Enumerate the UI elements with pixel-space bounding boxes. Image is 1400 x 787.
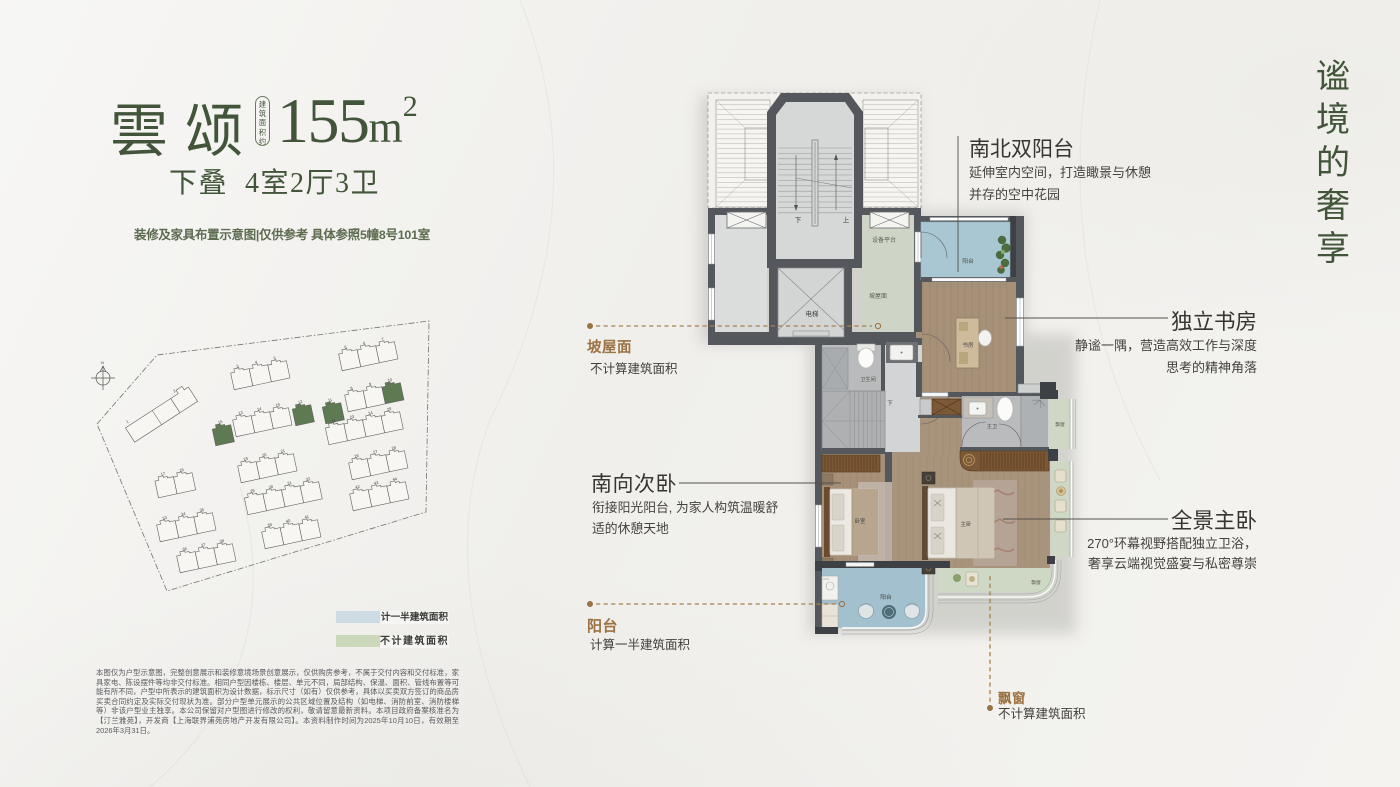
svg-text:11: 11 — [327, 397, 333, 403]
svg-text:阳台: 阳台 — [880, 593, 892, 601]
svg-text:29: 29 — [250, 488, 256, 494]
svg-text:35: 35 — [199, 507, 205, 513]
svg-text:13: 13 — [238, 410, 244, 416]
svg-text:下: 下 — [887, 400, 893, 407]
svg-text:17: 17 — [160, 471, 166, 477]
svg-text:阳台: 阳台 — [962, 257, 974, 265]
svg-text:21: 21 — [280, 448, 286, 454]
svg-text:卫生间: 卫生间 — [860, 375, 876, 383]
svg-text:40: 40 — [285, 518, 291, 524]
svg-text:36: 36 — [182, 546, 188, 552]
svg-text:主卧: 主卧 — [960, 520, 972, 528]
svg-text:下: 下 — [795, 216, 802, 224]
svg-text:27: 27 — [372, 449, 378, 455]
svg-text:坡屋面: 坡屋面 — [869, 292, 887, 300]
svg-text:9: 9 — [368, 381, 372, 387]
svg-text:6: 6 — [362, 340, 366, 346]
svg-text:19: 19 — [243, 456, 249, 462]
svg-text:30: 30 — [268, 484, 274, 490]
svg-text:26: 26 — [354, 453, 360, 459]
svg-text:39: 39 — [267, 522, 273, 528]
svg-text:3: 3 — [236, 363, 240, 369]
svg-text:1: 1 — [125, 418, 130, 424]
svg-text:设备平台: 设备平台 — [872, 236, 896, 244]
svg-text:31: 31 — [287, 480, 293, 486]
svg-text:38: 38 — [219, 538, 225, 544]
svg-text:书房: 书房 — [962, 341, 974, 349]
svg-text:43: 43 — [373, 480, 379, 486]
svg-text:16: 16 — [217, 419, 223, 425]
svg-text:卧室: 卧室 — [855, 517, 866, 525]
svg-text:飘窗: 飘窗 — [1031, 579, 1041, 586]
svg-text:23: 23 — [349, 414, 355, 420]
svg-text:7: 7 — [381, 336, 385, 342]
svg-text:12: 12 — [297, 399, 303, 405]
svg-text:24: 24 — [368, 410, 374, 416]
svg-text:14: 14 — [256, 406, 262, 412]
svg-text:10: 10 — [387, 377, 393, 383]
svg-text:32: 32 — [305, 476, 311, 482]
svg-text:8: 8 — [350, 385, 354, 391]
svg-text:主卫: 主卫 — [987, 422, 997, 430]
svg-text:电梯: 电梯 — [806, 309, 820, 318]
svg-text:N: N — [101, 360, 104, 365]
svg-text:44: 44 — [392, 476, 398, 482]
svg-text:33: 33 — [162, 515, 168, 521]
svg-text:37: 37 — [200, 542, 206, 548]
svg-text:15: 15 — [275, 402, 281, 408]
svg-text:42: 42 — [355, 484, 361, 490]
svg-text:5: 5 — [273, 355, 277, 361]
svg-text:25: 25 — [386, 406, 392, 412]
svg-text:28: 28 — [391, 445, 397, 451]
svg-text:20: 20 — [261, 452, 267, 458]
svg-text:5: 5 — [344, 344, 348, 350]
svg-text:4: 4 — [254, 359, 258, 365]
svg-text:上: 上 — [843, 215, 850, 224]
svg-text:飘窗: 飘窗 — [1055, 421, 1065, 428]
svg-text:41: 41 — [304, 514, 310, 520]
svg-text:34: 34 — [180, 511, 186, 517]
svg-text:18: 18 — [179, 467, 185, 473]
